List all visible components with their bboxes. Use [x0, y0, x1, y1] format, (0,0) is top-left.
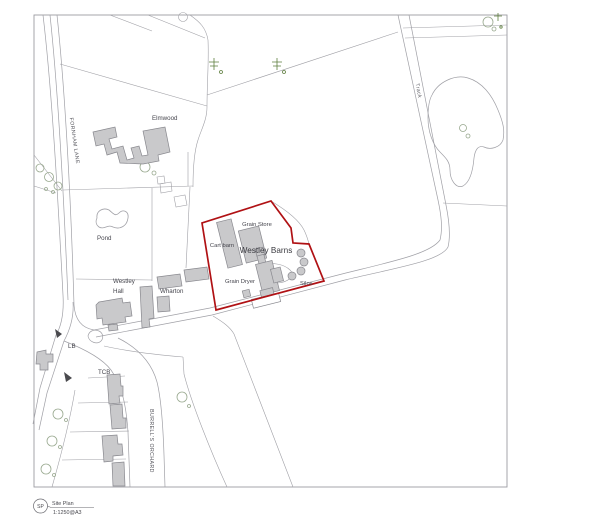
trees [36, 13, 502, 477]
label-wharton: Wharton [160, 288, 184, 295]
tree-icon [177, 392, 187, 402]
label-cart-barn: Cart barn [210, 243, 234, 249]
conifer-icon [209, 58, 223, 74]
label-grain-store: Grain Store [242, 222, 272, 228]
silo [297, 249, 305, 257]
title-block: SP Site Plan 1:1250@A3 [34, 499, 95, 516]
tree-icon [492, 27, 496, 31]
tree-icon [188, 405, 191, 408]
tree-icon [41, 464, 51, 474]
tree-icon [59, 446, 62, 449]
label-track: Track [414, 83, 423, 99]
silo [300, 258, 308, 266]
label-grain-dryer: Grain Dryer [225, 279, 255, 285]
label-silos: Silos [300, 281, 313, 287]
label-westley-barns: Westley Barns [240, 246, 293, 255]
tree-icon [47, 436, 57, 446]
pond-outline [96, 209, 128, 228]
label-elmwood: Elmwood [152, 115, 178, 122]
leader-line [48, 506, 52, 508]
building-orchard-4 [112, 462, 125, 486]
building-wharton-small [157, 296, 170, 312]
site-plan-page: FORNHAM LANE Elmwood Pond Grain Store Ca… [0, 0, 616, 520]
building-wharton-barn [140, 286, 154, 328]
label-lb: LB [68, 343, 76, 350]
label-westley: Westley [113, 278, 136, 285]
site-plan-map: FORNHAM LANE Elmwood Pond Grain Store Ca… [0, 0, 616, 520]
plan-scale: 1:1250@A3 [53, 510, 82, 516]
building-elmwood [93, 127, 170, 164]
building-wharton-1 [157, 274, 182, 289]
building-westley-hall [96, 298, 132, 325]
road-arrow-mark [64, 372, 72, 382]
plan-ref: SP [37, 504, 44, 510]
building-wharton-2 [184, 267, 209, 282]
plan-title: Site Plan [52, 501, 74, 507]
building-orchard-3 [102, 435, 123, 462]
silo [297, 267, 305, 275]
tree-icon [53, 474, 56, 477]
junction-island [88, 330, 103, 343]
tree-icon [152, 171, 156, 175]
building-westley-hall-porch [108, 324, 118, 331]
label-hall: Hall [113, 288, 124, 295]
silo [288, 272, 296, 280]
burrells-orchard-east-edge [118, 338, 165, 487]
label-fornham-lane: FORNHAM LANE [68, 117, 80, 164]
tree-icon [65, 419, 68, 422]
label-tcb: TCB [98, 369, 110, 376]
fornham-lane-centre-line [50, 15, 68, 300]
building-orchard-2 [110, 404, 126, 429]
label-burrells-orchard: BURRELL'S ORCHARD [148, 409, 154, 473]
tree-icon [53, 409, 63, 419]
building-orchard-1 [107, 374, 123, 404]
tree-icon [36, 164, 44, 172]
building-small-shed [242, 289, 250, 297]
label-pond: Pond [97, 235, 112, 242]
